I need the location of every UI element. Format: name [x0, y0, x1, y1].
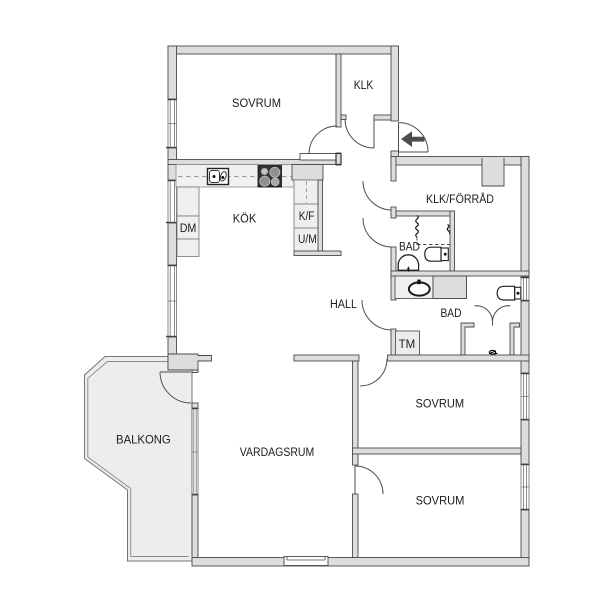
svg-text:TM: TM: [399, 337, 416, 351]
svg-text:KÖK: KÖK: [233, 212, 257, 226]
svg-text:U/M: U/M: [298, 232, 317, 246]
svg-text:SOVRUM: SOVRUM: [416, 494, 465, 508]
svg-text:BALKONG: BALKONG: [116, 433, 171, 447]
svg-text:K/F: K/F: [299, 209, 315, 223]
svg-text:BAD: BAD: [399, 240, 420, 254]
svg-text:KLK: KLK: [354, 78, 374, 92]
svg-text:VARDAGSRUM: VARDAGSRUM: [240, 445, 315, 459]
svg-text:BAD: BAD: [441, 306, 462, 320]
svg-text:HALL: HALL: [330, 297, 357, 311]
svg-text:KLK/FÖRRÅD: KLK/FÖRRÅD: [426, 191, 494, 206]
svg-text:SOVRUM: SOVRUM: [415, 397, 464, 411]
svg-text:SOVRUM: SOVRUM: [232, 96, 281, 110]
svg-text:DM: DM: [180, 221, 197, 235]
